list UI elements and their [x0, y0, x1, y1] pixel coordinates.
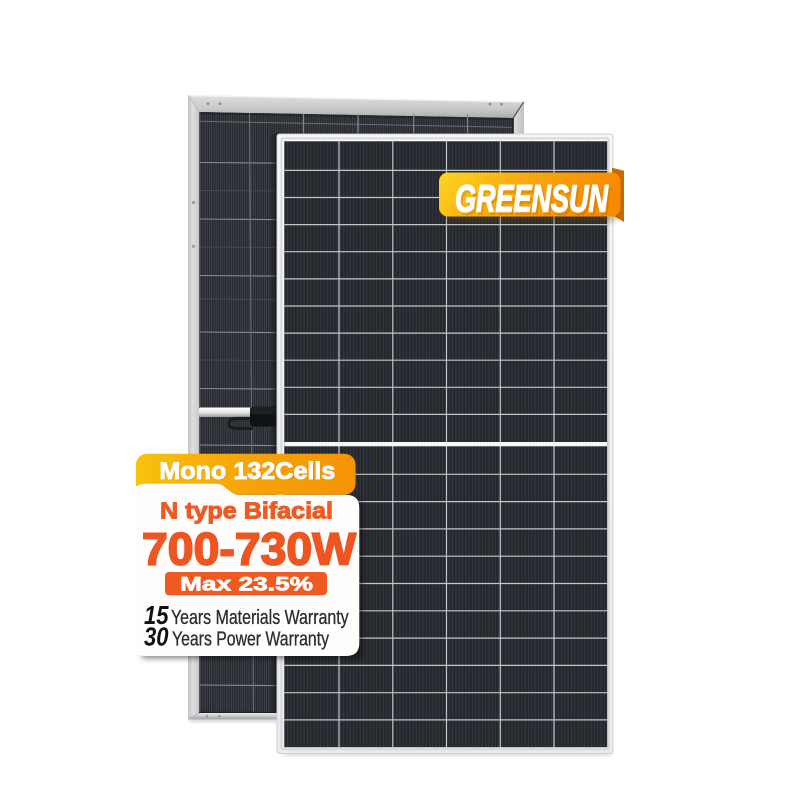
svg-text:30: 30 [144, 624, 169, 652]
svg-text:GREENSUN: GREENSUN [455, 179, 609, 221]
svg-text:Max 23.5%: Max 23.5% [180, 574, 313, 596]
svg-text:Mono 132Cells: Mono 132Cells [159, 458, 335, 485]
svg-text:N type Bifacial: N type Bifacial [160, 498, 333, 524]
svg-text:Years Power Warranty: Years Power Warranty [172, 629, 329, 651]
svg-text:Years Materials Warranty: Years Materials Warranty [171, 607, 349, 629]
svg-text:700-730W: 700-730W [142, 524, 356, 575]
